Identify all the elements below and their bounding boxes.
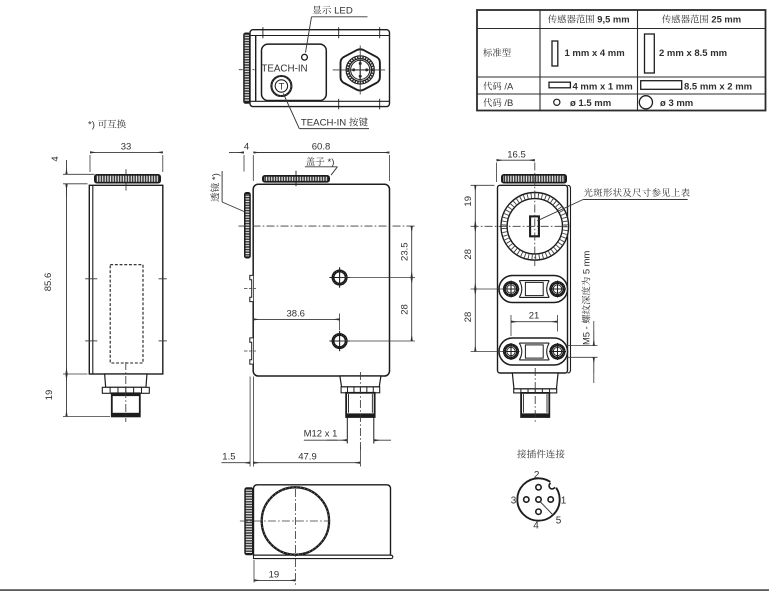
svg-text:28: 28: [463, 249, 474, 260]
svg-text:19: 19: [269, 570, 280, 581]
svg-text:4: 4: [533, 521, 539, 532]
svg-text:33: 33: [121, 142, 132, 153]
svg-text:传感器范围 25 mm: 传感器范围 25 mm: [662, 14, 741, 25]
svg-text:2 mm x 8.5 mm: 2 mm x 8.5 mm: [659, 48, 727, 59]
svg-text:8.5 mm x 2 mm: 8.5 mm x 2 mm: [684, 82, 752, 93]
svg-text:M12 x 1: M12 x 1: [304, 429, 338, 440]
svg-text:28: 28: [463, 312, 474, 323]
svg-text:TEACH-IN: TEACH-IN: [261, 64, 307, 75]
svg-text:19: 19: [463, 196, 474, 207]
svg-text:1: 1: [561, 495, 567, 506]
svg-text:4: 4: [50, 156, 61, 161]
svg-text:1.5: 1.5: [222, 452, 235, 463]
svg-text:M5 - 螺纹深度为 5 mm: M5 - 螺纹深度为 5 mm: [581, 251, 592, 345]
svg-text:传感器范围 9,5 mm: 传感器范围 9,5 mm: [548, 14, 630, 25]
svg-text:23.5: 23.5: [400, 242, 411, 261]
svg-text:ø 1.5 mm: ø 1.5 mm: [570, 98, 611, 109]
svg-text:1 mm x 4 mm: 1 mm x 4 mm: [565, 48, 625, 59]
svg-text:T: T: [279, 82, 285, 92]
svg-text:TEACH-IN 按键: TEACH-IN 按键: [301, 116, 369, 128]
svg-text:4: 4: [244, 141, 249, 152]
svg-text:标准型: 标准型: [483, 47, 511, 58]
svg-text:4 mm x 1 mm: 4 mm x 1 mm: [573, 82, 633, 93]
svg-text:光斑形状及尺寸参见上表: 光斑形状及尺寸参见上表: [584, 187, 691, 198]
svg-text:5: 5: [556, 516, 562, 527]
svg-text:85.6: 85.6: [43, 273, 54, 292]
svg-text:显示 LED: 显示 LED: [312, 6, 353, 17]
svg-text:47.9: 47.9: [298, 452, 317, 463]
svg-text:3: 3: [511, 496, 517, 507]
svg-text:接插件连接: 接插件连接: [517, 448, 565, 460]
svg-text:38.6: 38.6: [286, 308, 305, 319]
svg-text:19: 19: [44, 390, 55, 401]
svg-text:代码 /A: 代码 /A: [483, 81, 514, 92]
svg-text:60.8: 60.8: [312, 141, 331, 152]
svg-text:*) 可互换: *) 可互换: [88, 118, 127, 130]
svg-text:21: 21: [529, 310, 540, 321]
svg-text:代码 /B: 代码 /B: [483, 97, 513, 108]
svg-text:透镜 *): 透镜 *): [210, 173, 222, 202]
svg-text:ø 3 mm: ø 3 mm: [660, 98, 693, 109]
svg-text:28: 28: [400, 304, 411, 315]
svg-text:16.5: 16.5: [507, 149, 526, 160]
svg-text:2: 2: [534, 470, 540, 481]
